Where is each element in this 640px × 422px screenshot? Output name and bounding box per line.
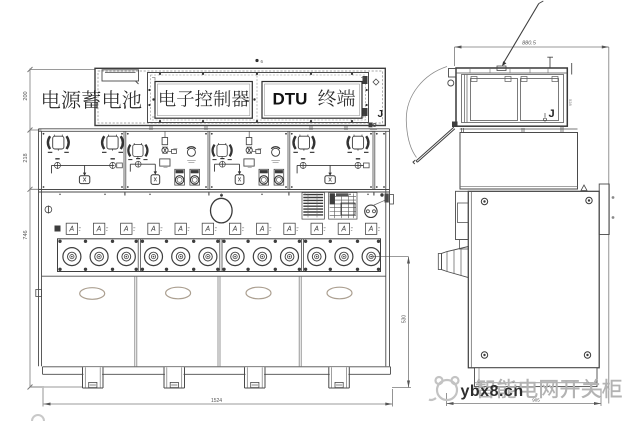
svg-text:6: 6	[261, 59, 264, 64]
svg-text:J: J	[549, 108, 555, 120]
svg-text:J: J	[378, 109, 384, 120]
svg-text:200: 200	[23, 91, 29, 100]
svg-text:880.5: 880.5	[522, 41, 537, 47]
svg-text:528: 528	[568, 99, 573, 106]
svg-text:746: 746	[23, 230, 29, 239]
svg-text:DTU: DTU	[273, 90, 308, 109]
svg-text:530: 530	[402, 315, 408, 324]
svg-text:905: 905	[532, 398, 540, 403]
svg-text:ybx8.cn: ybx8.cn	[461, 383, 524, 400]
svg-text:218: 218	[23, 153, 29, 162]
svg-text:1524: 1524	[211, 398, 222, 404]
